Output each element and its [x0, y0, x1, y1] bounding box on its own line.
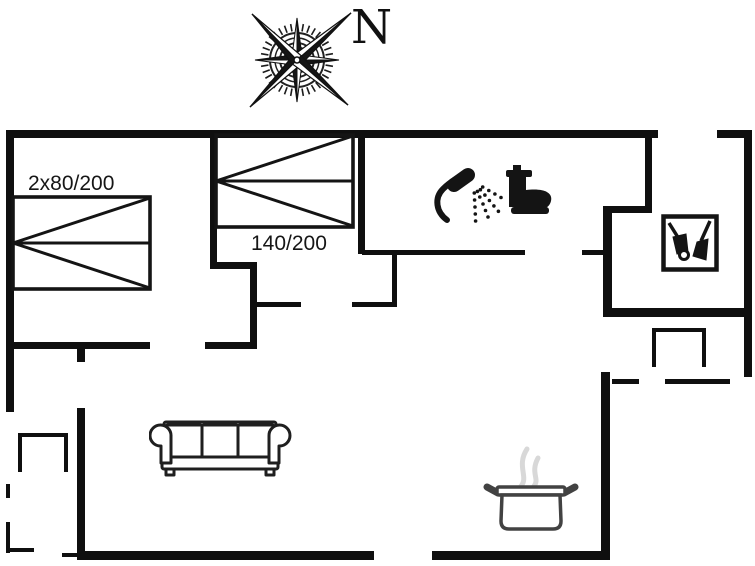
wall-segment — [645, 134, 652, 212]
wall-segment — [744, 130, 752, 377]
standard-bed-label: 140/200 — [251, 232, 327, 256]
wall-segment — [77, 408, 85, 559]
wall-segment — [582, 250, 603, 255]
wall-segment — [603, 308, 752, 317]
wall-segment — [665, 379, 730, 384]
cleaning-tools-icon — [661, 214, 719, 272]
wall-segment — [392, 253, 397, 305]
wall-segment — [210, 262, 257, 269]
wall-segment — [6, 484, 10, 498]
north-label: N — [351, 4, 392, 51]
wall-segment — [77, 551, 374, 560]
wall-segment — [6, 548, 34, 552]
wall-segment — [603, 206, 612, 317]
wall-segment — [652, 328, 706, 332]
wall-segment — [362, 250, 525, 255]
wall-segment — [257, 302, 301, 307]
wall-segment — [18, 433, 22, 472]
wall-segment — [652, 328, 656, 367]
toilet-icon — [503, 164, 558, 220]
wall-segment — [250, 264, 257, 349]
wall-segment — [612, 379, 639, 384]
wall-segment — [352, 302, 397, 307]
cooking-pot-icon — [483, 442, 579, 536]
compass-rose-icon — [244, 8, 356, 118]
floor-plan-canvas: N 2x80/200 140/200 — [0, 0, 755, 566]
wall-segment — [64, 433, 68, 472]
wall-segment — [62, 553, 78, 557]
double-bed — [11, 195, 153, 292]
wall-segment — [358, 134, 365, 254]
wall-segment — [702, 328, 706, 367]
shower-icon — [430, 160, 510, 232]
wall-segment — [601, 372, 610, 560]
sofa-icon — [149, 419, 293, 479]
standard-bed — [214, 133, 356, 230]
wall-segment — [432, 551, 610, 560]
wall-segment — [18, 433, 68, 437]
wall-segment — [6, 342, 150, 349]
double-bed-label: 2x80/200 — [28, 172, 114, 196]
